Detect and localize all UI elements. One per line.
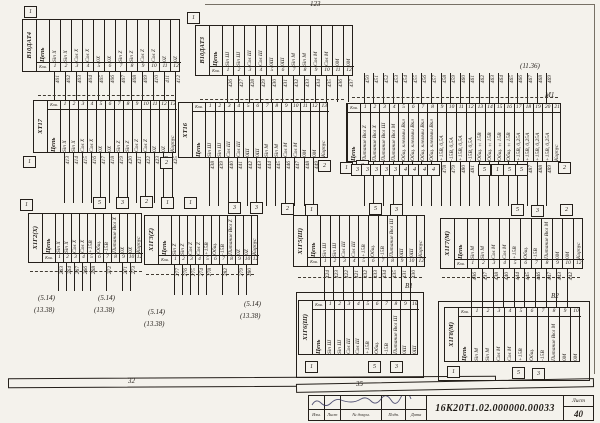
wire-number: 409	[143, 75, 149, 83]
circuit-label: Общ. ±15В	[477, 114, 483, 161]
wire-number: 455	[413, 75, 419, 83]
circuit-cell: Корпус	[574, 219, 584, 259]
junction-box: 5	[511, 204, 524, 216]
wire-number: 438	[210, 161, 216, 169]
pin-column: 5Общ. клеммы Вкл	[398, 104, 408, 161]
pin-column: Питание Вкл Z8	[227, 216, 235, 264]
circuit-cell: Cos Ш	[235, 112, 244, 157]
circuit-label: +15В	[512, 220, 518, 259]
junction-box: 4	[427, 164, 440, 176]
circuit-cell: Sin M	[263, 112, 272, 157]
circuit-label: Корпус	[576, 220, 582, 259]
pin-cell: 7	[263, 103, 272, 112]
pin-column: 15Общ. ±15В	[494, 104, 504, 161]
pin-cell: 6	[278, 66, 288, 75]
circuit-cell: Cos M	[489, 219, 499, 259]
pin-column: 3Cos M	[493, 308, 504, 361]
circuit-cell: +15В	[516, 317, 526, 361]
pin-column: 0Z11	[159, 20, 170, 71]
circuit-label: +15В, 0,25А	[545, 114, 551, 161]
pin-cell: 13	[169, 101, 177, 110]
pin-column: 3Cos X	[78, 101, 87, 152]
pin-column: 100М	[570, 308, 581, 361]
pin-cell: 11	[160, 62, 170, 71]
circuit-cell: Cos M	[500, 219, 510, 259]
circuit-label: Cos M	[324, 27, 330, 66]
circuit-label: 0М	[565, 220, 571, 259]
connector-table-xt16: ХТ16Кон.Цепь1Sin Ш2Sin Ш3Cos Ш4Cos Ш50Ш6…	[178, 102, 328, 158]
circuit-label: Общ. клеммы Вкл	[429, 114, 435, 161]
wire-number: 415	[83, 156, 89, 164]
circuit-header-label: Цепь	[310, 217, 317, 257]
pin-column: Корпус12	[251, 216, 259, 264]
circuit-label: 0X	[107, 21, 113, 62]
circuit-cell: Цепь	[210, 26, 222, 66]
pin-column: Корпус12	[135, 214, 143, 262]
circuit-cell: Cos Ш	[245, 26, 255, 66]
circuit-label: Sin X	[63, 21, 69, 62]
header-column: ЦепьКон.	[36, 20, 49, 71]
pin-column: +15В5	[509, 219, 520, 268]
circuit-cell: +15В	[204, 216, 211, 255]
pin-cell: 4	[354, 301, 362, 310]
table-name: Х1Г5(Ш)	[294, 216, 307, 266]
header-column: Кон.Цепь	[47, 101, 60, 152]
pin-column: Sin X1	[49, 20, 60, 71]
circuit-cell: 0X	[106, 110, 114, 152]
pin-cell: 1	[61, 101, 69, 110]
circuit-label: 0Ш	[245, 113, 251, 157]
pin-cell: 7	[115, 101, 123, 110]
pin-cell: 8	[388, 257, 397, 266]
pin-cell: 7	[116, 62, 126, 71]
junction-box: 3	[228, 202, 241, 214]
pin-cell: 1	[468, 259, 478, 268]
circuit-cell: Cos Ш	[350, 216, 359, 257]
table-name-label: Х1Г8(М)	[448, 322, 455, 347]
pin-column: 20+15В, 0,25А	[542, 104, 552, 161]
pin-column: Cos M3	[488, 219, 499, 268]
pin-column: 0X9	[119, 214, 127, 262]
circuit-cell: Общ.	[527, 317, 537, 361]
circuit-cell: Питание Вкл М	[549, 317, 559, 361]
wire-number: 275	[191, 268, 197, 276]
wire-number: 479	[451, 165, 457, 173]
circuit-label: Корпус	[554, 114, 560, 161]
pin-column: Корпус12	[573, 219, 584, 268]
circuit-cell: 0Ш	[398, 216, 407, 257]
wire-number: 480	[461, 165, 467, 173]
pin-column: Sin Z1	[171, 216, 179, 264]
circuit-label: -15В	[533, 220, 539, 259]
ref-label: (13.38)	[94, 307, 114, 314]
circuit-header-label: Цепь	[457, 220, 464, 259]
circuit-label: 0Ш	[409, 217, 415, 257]
pin-column: Cos Ш4	[255, 26, 266, 75]
pin-header-cell: Кон.	[348, 104, 360, 113]
bus-dashed-line	[442, 277, 580, 278]
wire-number: 282	[223, 268, 229, 276]
circuit-cell: 0М	[563, 219, 573, 259]
circuit-label: 0Z	[162, 21, 168, 62]
circuit-cell: 0Z	[160, 20, 170, 62]
wire-number: 433	[305, 79, 311, 87]
circuit-cell: Cos Z	[149, 20, 159, 62]
pin-cell: 8	[542, 259, 552, 268]
wire-number: 467	[528, 75, 534, 83]
pin-cell: 2	[216, 103, 225, 112]
pin-cell: 7	[382, 301, 390, 310]
circuit-cell: Корпус	[169, 110, 177, 152]
pin-cell: 1	[361, 104, 370, 113]
pin-cell: 6	[106, 101, 114, 110]
wire-number: 441	[238, 161, 244, 169]
pin-column: 2Sin M	[482, 308, 493, 361]
circuit-cell: Cos X	[88, 110, 96, 152]
circuit-label: Питание Вкл X	[112, 215, 118, 253]
circuit-cell: -15В	[532, 219, 542, 259]
circuit-label: Общ. клеммы Вкл	[410, 114, 416, 161]
connector-table-xt17: ХТ17Кон.Цепь1Sin X2Sin X3Cos X4Cos X50X6…	[33, 100, 176, 153]
wire-number: 426	[228, 79, 234, 87]
pin-column: Cos Z9	[137, 20, 148, 71]
bus-dashed-line	[30, 271, 142, 272]
circuit-cell: Cos M	[311, 26, 321, 66]
header-column: ЦепьКон.	[42, 214, 55, 262]
pin-cell: 5	[97, 101, 105, 110]
junction-box: 1	[23, 156, 36, 168]
pin-cell: 4	[505, 308, 515, 317]
pin-column: 9Cos M	[281, 103, 291, 157]
table-name-label: В10ДАТ3	[199, 37, 206, 64]
table-name: Х1Г3(Z)	[145, 216, 158, 264]
wire-number: 414	[74, 156, 80, 164]
circuit-cell: Общ. клеммы Вкл	[409, 113, 418, 161]
pin-column: Cos X4	[79, 214, 87, 262]
circuit-cell: Sin Ш	[223, 26, 233, 66]
pin-column: 18+15В, 0,25А	[523, 104, 533, 161]
pin-column: 120Z	[159, 101, 168, 152]
pin-column: Sin X2	[60, 20, 71, 71]
wire-number: 468	[538, 75, 544, 83]
circuit-label: 0X	[120, 215, 126, 253]
junction-box: 3	[250, 202, 263, 214]
pin-header-cell: Кон.	[313, 301, 325, 310]
wire-number: 465	[509, 75, 515, 83]
pin-cell: 10	[128, 253, 135, 262]
circuit-cell: 0M	[344, 26, 354, 66]
pin-column: 110M	[300, 103, 310, 157]
circuit-label: Sin M	[264, 113, 270, 157]
schematic-sheet: Изм. Лист № докум. Подп. Дата 16К20Т1.02…	[0, 0, 600, 423]
pin-cell: 16	[505, 104, 514, 113]
pin-column: Cos Z3	[187, 216, 195, 264]
circuit-cell: Цепь	[48, 110, 60, 152]
pin-cell: 4	[390, 104, 399, 113]
pin-column: Cos Ш3	[244, 26, 255, 75]
junction-box: 2	[281, 203, 294, 215]
pin-cell: 8	[124, 101, 132, 110]
circuit-cell: Цепь	[193, 112, 205, 157]
circuit-cell: Общ. ±15В	[505, 113, 514, 161]
circuit-cell: Cos Z	[138, 20, 148, 62]
wire-number: 418	[110, 156, 116, 164]
circuit-label: +15В, 0,5А	[458, 114, 464, 161]
pin-column: Cos X3	[71, 214, 79, 262]
pin-column: 0X10	[127, 214, 135, 262]
pin-cell: 1	[472, 308, 482, 317]
circuit-cell: Цепь	[455, 219, 467, 259]
connector-table-v10dat4: В10ДАТ4ЦепьКон.Sin X1Sin X2Cos X3Cos X40…	[22, 19, 180, 72]
circuit-cell: +15В	[88, 214, 95, 253]
pin-column: 3Cos Ш	[344, 301, 353, 354]
pin-column: Общ.6	[211, 216, 219, 264]
pin-cell: 5	[88, 253, 95, 262]
pin-column: 0Ш6	[277, 26, 288, 75]
circuit-label: Cos X	[80, 215, 86, 253]
table-name: Х1Г8(М)	[445, 308, 458, 361]
circuit-label: Sin X	[64, 215, 70, 253]
junction-box: 2	[558, 162, 571, 174]
pin-column: Общ.6	[368, 216, 378, 266]
pin-cell: 10	[322, 66, 332, 75]
wire-number: 469	[547, 75, 553, 83]
wire-number: 421	[137, 156, 143, 164]
circuit-cell: -15В, 0,5А	[467, 113, 476, 161]
pin-column: Sin Z2	[179, 216, 187, 264]
pin-column: 90Ш	[400, 301, 409, 354]
circuit-label: Питание Вкл Z	[228, 217, 234, 255]
pin-cell: 9	[401, 301, 409, 310]
wire-number: 442	[248, 161, 254, 169]
circuit-label: Cos Z	[151, 21, 157, 62]
wire-number: 429	[261, 79, 267, 87]
header-column: Кон.Цепь	[192, 103, 205, 157]
junction-box: 1	[184, 197, 197, 209]
circuit-label: 0M	[335, 27, 341, 66]
circuit-cell: Sin Ш	[216, 112, 225, 157]
circuit-label: Sin Z	[172, 217, 178, 255]
pin-cell: 4	[500, 259, 510, 268]
pin-column: 4Питание Вкл М	[389, 104, 399, 161]
circuit-cell: Cos Ш	[256, 26, 266, 66]
pin-column: -15В7	[103, 214, 111, 262]
pin-column: 3Cos Ш	[224, 103, 234, 157]
circuit-cell: 0Ш	[267, 26, 277, 66]
ref-label: (5.14)	[148, 309, 165, 316]
pin-column: Питание Вкл М8	[541, 219, 552, 268]
pin-cell: 4	[196, 255, 203, 264]
circuit-label: +15В	[204, 217, 210, 255]
pin-cell: 12	[252, 255, 259, 264]
pin-column: Cos Ш3	[339, 216, 349, 266]
circuit-cell: 0Ш	[407, 216, 416, 257]
ref-label: 32	[128, 378, 135, 385]
circuit-label: +15В, 0,25А	[535, 114, 541, 161]
pin-column: 1Sin Ш	[325, 301, 334, 354]
pin-cell: 12	[344, 66, 354, 75]
circuit-cell: Питание Вкл Ш	[392, 310, 400, 354]
wire-number: 432	[294, 79, 300, 87]
circuit-label: Общ.	[96, 215, 102, 253]
pin-cell: 3	[72, 253, 79, 262]
pin-column: 17+15В, 0,25А	[514, 104, 524, 161]
circuit-label: 0M	[346, 27, 352, 66]
circuit-label: 0Ш	[255, 113, 261, 157]
pin-cell: 8	[392, 301, 400, 310]
junction-box: 1	[305, 361, 318, 373]
circuit-label: Cos M	[502, 220, 508, 259]
wire-number: 444	[267, 161, 273, 169]
circuit-label: +15В	[365, 311, 371, 354]
pin-column: 0X5	[93, 20, 104, 71]
circuit-label: Cos Ш	[258, 27, 264, 66]
header-column: Кон.Цепь	[347, 104, 360, 161]
circuit-label: +15В, 0,5А	[439, 114, 445, 161]
circuit-cell: Sin Ш	[335, 310, 343, 354]
connector-table-x1g8: Х1Г8(М)Кон.Цепь1Sin M2Sin M3Cos M4Cos M5…	[444, 307, 580, 362]
wire-number: 427	[239, 79, 245, 87]
circuit-label: -15В	[380, 217, 386, 257]
pin-column: 9+15В, 0,5А	[437, 104, 447, 161]
circuit-label: Sin M	[474, 318, 480, 361]
circuit-label: Общ. ±15В	[497, 114, 503, 161]
connector-table-x1g6: Х1Г6(Ш)Кон.Цепь1Sin Ш2Sin Ш3Cos Ш4Cos Ш5…	[298, 300, 418, 355]
pin-cell: 9	[282, 103, 291, 112]
circuit-cell: Питание Вкл М	[542, 219, 552, 259]
circuit-cell: Sin Z	[172, 216, 179, 255]
pin-column: 13Общ. ±15В	[475, 104, 485, 161]
pin-cell: 5	[364, 301, 372, 310]
pin-cell: 8	[127, 62, 137, 71]
wire-number: 459	[451, 75, 457, 83]
circuit-cell: Цепь	[37, 20, 49, 62]
circuit-cell: Cos X	[72, 20, 82, 62]
junction-box: 3	[390, 361, 403, 373]
ref-label: (13.38)	[240, 313, 260, 320]
circuit-cell: 0М	[560, 317, 570, 361]
pin-cell: 13	[320, 103, 329, 112]
wire-number: 481	[470, 165, 476, 173]
circuit-cell: 0Z	[151, 110, 159, 152]
pin-column: 7-15В	[381, 301, 390, 354]
circuit-label: Sin Ш	[322, 217, 328, 257]
pin-cell: 10	[244, 255, 251, 264]
ref-label: (5.14)	[98, 295, 115, 302]
pin-column: +15В5	[358, 216, 368, 266]
pin-column: 6Общ.	[372, 301, 381, 354]
wire-number: 422	[146, 156, 152, 164]
pin-column: Sin Z8	[126, 20, 137, 71]
header-column: ЦепьКон.	[454, 219, 467, 268]
pin-column: 2Питание Вкл X	[370, 104, 380, 161]
pin-column: 7Общ. клеммы Вкл	[418, 104, 428, 161]
circuit-cell: Sin Z	[180, 216, 187, 255]
pin-column: Sin X1	[55, 214, 63, 262]
wire-number: 406	[110, 75, 116, 83]
pin-cell: 9	[560, 308, 570, 317]
circuit-cell: Sin Z	[124, 110, 132, 152]
pin-cell: 2	[483, 308, 493, 317]
circuit-cell: Cos X	[79, 110, 87, 152]
circuit-label: 0X	[128, 215, 134, 253]
circuit-label: Sin M	[302, 27, 308, 66]
table-name-label: Х1Г5(Ш)	[297, 228, 304, 254]
pin-column: 7Sin Z	[114, 101, 123, 152]
pin-cell: 3	[494, 308, 504, 317]
pin-cell: 2	[234, 66, 244, 75]
pin-cell: 7	[220, 255, 227, 264]
circuit-cell: Sin M	[289, 26, 299, 66]
pin-column: Cos X3	[71, 20, 82, 71]
connector-table-x1g7: Х1Г7(М)ЦепьКон.Sin M1Sin M2Cos M3Cos M4+…	[440, 218, 583, 269]
circuit-label: -15В	[220, 217, 226, 255]
circuit-label: 0X	[107, 111, 113, 152]
circuit-cell: Цепь	[313, 310, 325, 354]
pin-cell: 3	[340, 257, 349, 266]
pin-cell: 10	[292, 103, 301, 112]
wire-number: 437	[349, 79, 355, 87]
pin-cell: 10	[411, 301, 419, 310]
table-name: В10ДАТ4	[23, 20, 36, 71]
bus-dashed-line	[146, 274, 254, 275]
pin-column: -15В7	[219, 216, 227, 264]
pin-cell: 10	[142, 101, 150, 110]
pin-cell: 1	[326, 301, 334, 310]
wire-number: 277	[175, 268, 181, 276]
pin-column: 4Cos Ш	[234, 103, 244, 157]
circuit-cell: 0М	[571, 317, 581, 361]
table-name: В10ДАТ3	[196, 26, 209, 75]
circuit-label: Cos M	[507, 318, 513, 361]
circuit-label: Sin Ш	[236, 27, 242, 66]
circuit-header-label: Цепь	[350, 114, 357, 161]
table-name: Х1Г2(Х)	[29, 214, 42, 262]
pin-column: 90М	[559, 308, 570, 361]
pin-cell: 3	[188, 255, 195, 264]
header-column: ЦепьКон.	[209, 26, 222, 75]
pin-cell: 3	[245, 66, 255, 75]
pin-cell: 15	[495, 104, 504, 113]
pin-column: Cos M10	[321, 26, 332, 75]
pin-column: 1Sin M	[471, 308, 482, 361]
circuit-header-label: Цепь	[315, 311, 322, 354]
pin-cell: 11	[333, 66, 343, 75]
circuit-cell: Cos X	[80, 214, 87, 253]
pin-column: -15В7	[531, 219, 542, 268]
pin-cell: 12	[467, 104, 476, 113]
circuit-label: +15В	[361, 217, 367, 257]
circuit-cell: Питание Вкл X	[371, 113, 380, 161]
circuit-label: Корпус	[136, 215, 142, 253]
circuit-cell: Общ.	[212, 216, 219, 255]
pin-cell: 7	[419, 104, 428, 113]
pin-column: 16Общ. ±15В	[504, 104, 514, 161]
wire-number: 443	[257, 161, 263, 169]
circuit-cell: 0M	[301, 112, 310, 157]
pin-column: 7-15В	[537, 308, 548, 361]
pin-cell: 9	[236, 255, 243, 264]
junction-box: 1	[20, 199, 33, 211]
pin-column: 13Корпус	[319, 103, 329, 157]
circuit-cell: 0Z	[244, 216, 251, 255]
wire-number: 411	[165, 75, 171, 83]
circuit-label: Питание Вкл Ш	[389, 217, 395, 257]
pin-cell: 2	[70, 101, 78, 110]
wire-number: 404	[88, 75, 94, 83]
circuit-header-label: Цепь	[39, 21, 46, 62]
pin-cell: 3	[72, 62, 82, 71]
